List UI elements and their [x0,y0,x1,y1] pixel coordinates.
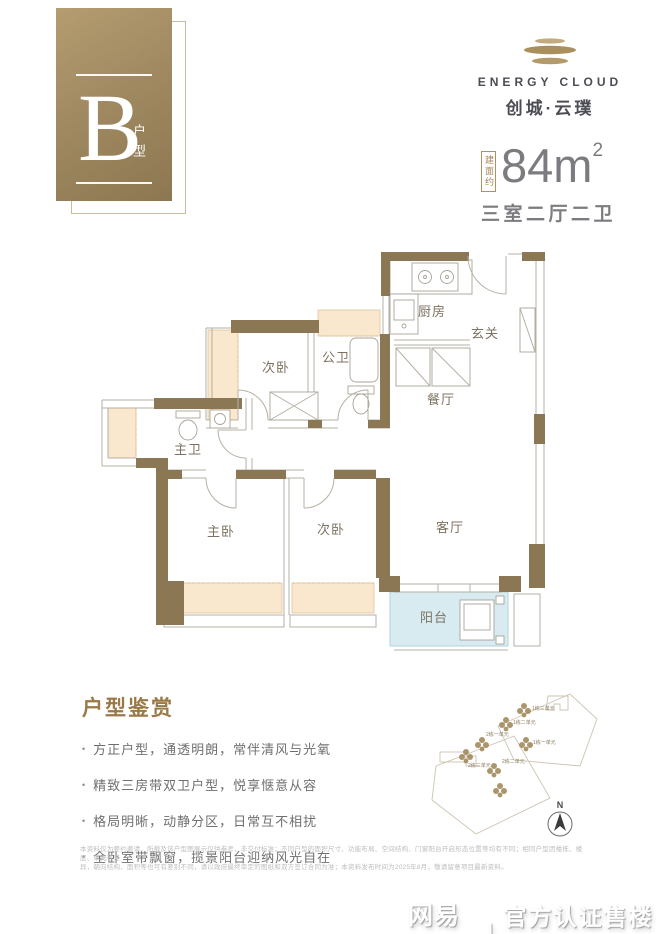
flyer-page: B 户型 ENERGY CLOUD 创城·云璞 建面约 84m 2 三室二厅二卫 [0,0,660,934]
features-title: 户型鉴赏 [82,692,331,722]
bullet-icon: • [82,816,86,826]
area-info: 建面约 84m 2 三室二厅二卫 [481,142,616,226]
area-superscript: 2 [592,140,603,162]
watermark-label: 官方认证售楼处 [503,898,660,934]
svg-text:N: N [557,800,564,810]
cloud-lens-icon [518,36,582,70]
features-section: 户型鉴赏 •方正户型，通透明朗，常伴清风与光氧 •精致三房带双卫户型，悦享惬意从… [82,692,331,866]
siteplan-label: 1栋一单元 [533,739,556,746]
room-label-balcony: 阳台 [420,610,448,625]
room-label-dining: 餐厅 [427,392,455,407]
room-label-master-bedroom: 主卧 [207,524,235,539]
badge-divider-bottom [76,182,152,184]
disclaimer-text: 本资料仅为要约邀请，所载及该户型图展示仅供参考，非交付标准；不同户型的面积尺寸、… [80,845,588,872]
watermark-divider: | [488,919,494,934]
area-prefix-badge: 建面约 [481,151,496,192]
watermark: 网易号 | 官方认证售楼处 [408,896,660,934]
watermark-brand: 网易号 [408,896,478,934]
brand-logo: ENERGY CLOUD 创城·云璞 [462,36,638,119]
floorplan-diagram: 厨房 玄关 餐厅 公卫 次卧 主卫 主卧 次卧 客厅 阳台 [98,244,548,674]
room-label-bedroom-2: 次卧 [262,360,290,375]
room-label-kitchen: 厨房 [418,304,446,319]
feature-item: •精致三房带双卫户型，悦享惬意从容 [82,775,331,794]
bullet-icon: • [82,780,86,790]
siteplan-map: 1栋三单元 1栋二单元 1栋一单元 2栋一单元 2栋二单元 2栋三单元 N [420,686,615,846]
feature-item: •格局明晰，动静分区，日常互不相扰 [82,811,331,830]
siteplan-label: 1栋三单元 [532,705,555,712]
room-label-guest-bath: 公卫 [322,350,350,365]
siteplan-label: 2栋二单元 [502,758,525,765]
feature-item: •方正户型，通透明朗，常伴清风与光氧 [82,739,331,758]
bullet-icon: • [82,744,86,754]
north-compass-icon: N [548,800,572,836]
unit-type-badge: B 户型 [56,8,172,201]
siteplan-label: 1栋二单元 [513,719,536,726]
room-label-master-bath: 主卫 [174,442,202,457]
room-label-bedroom-3: 次卧 [317,522,345,537]
room-layout-text: 三室二厅二卫 [481,199,616,226]
room-label-foyer: 玄关 [471,326,499,341]
room-label-living: 客厅 [436,520,464,535]
brand-name-cn: 创城·云璞 [462,94,638,119]
brand-name-en: ENERGY CLOUD [462,75,638,89]
area-value: 84m [501,142,592,189]
siteplan-label: 2栋一单元 [486,731,509,738]
siteplan-label: 2栋三单元 [468,762,491,769]
unit-type-label: 户型 [129,124,148,164]
